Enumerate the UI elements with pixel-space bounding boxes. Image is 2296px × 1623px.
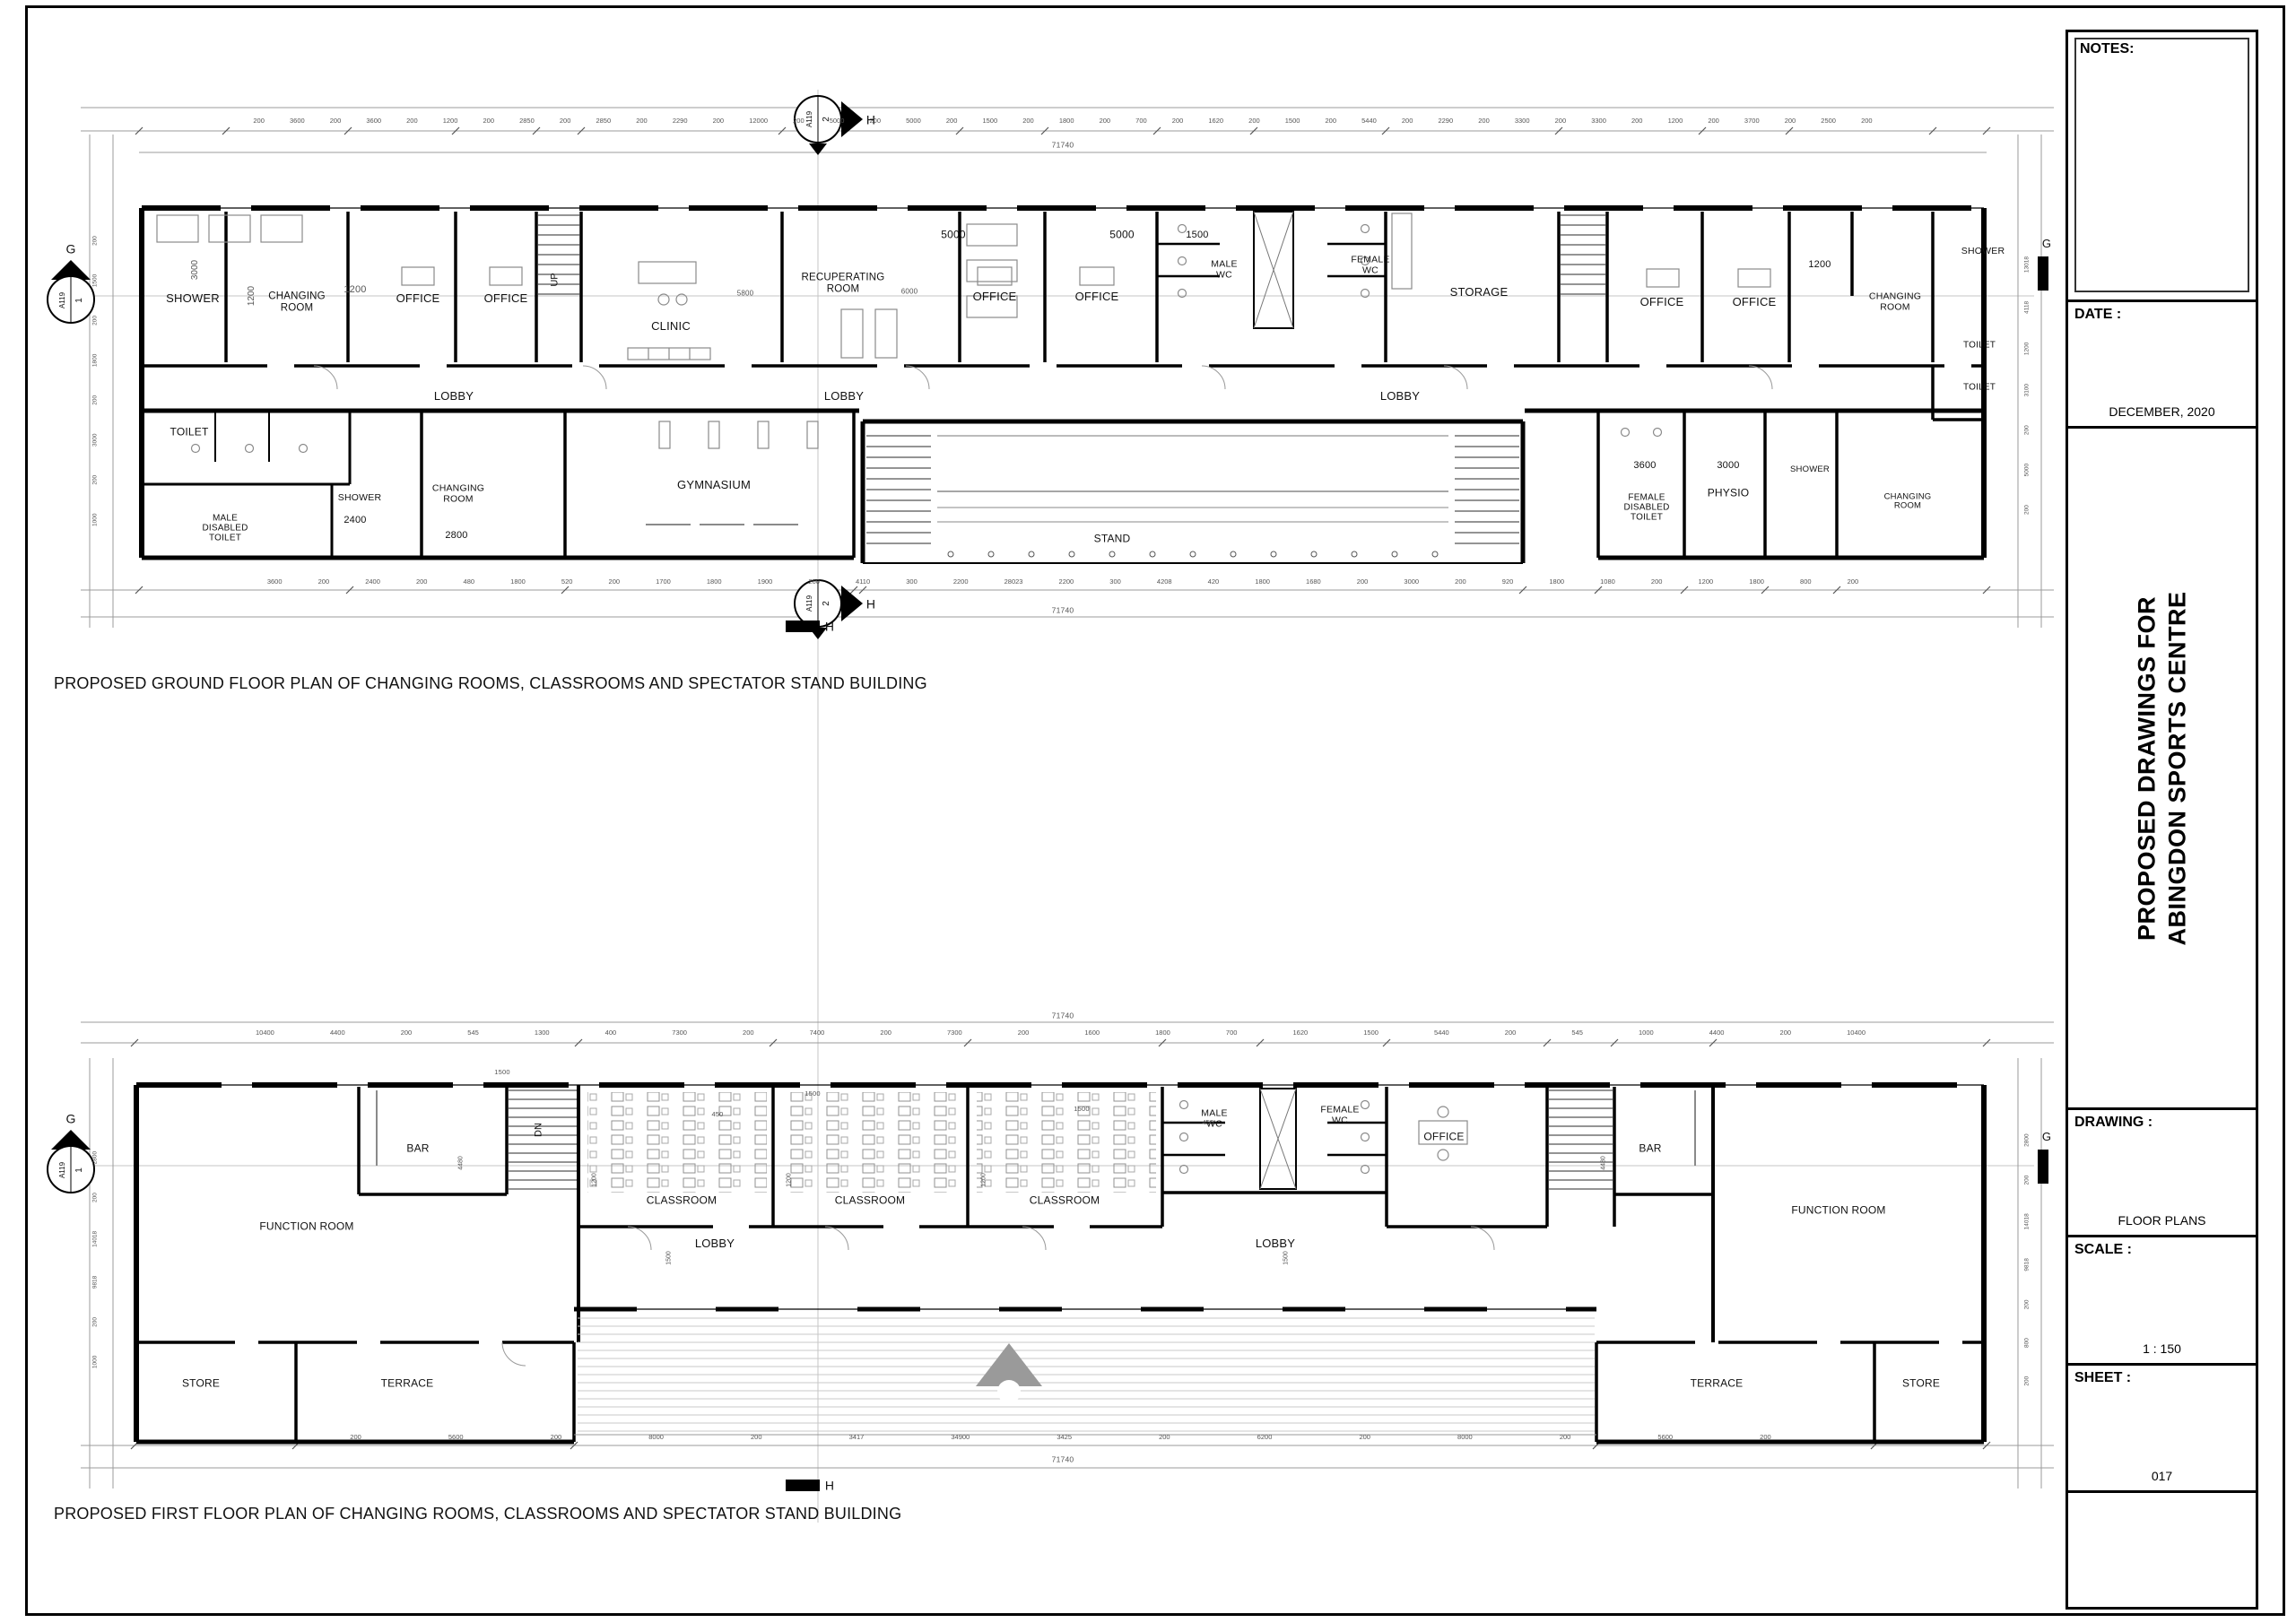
room-label-clinic: CLINIC — [651, 320, 691, 333]
dim-label: 4480 — [1601, 1156, 1607, 1170]
dim-label: 3000 — [191, 260, 200, 280]
title-block-project: PROPOSED DRAWINGS FOR ABINGDON SPORTS CE… — [2068, 429, 2256, 1110]
plans-drawing — [0, 0, 2296, 1623]
dim-label: 6000 — [901, 289, 918, 297]
dim-label: 1200 — [344, 284, 366, 295]
room-label-recuperating-room: RECUPERATING ROOM — [802, 272, 885, 294]
section-marker-ref: A119 — [59, 1162, 66, 1178]
ground-furniture — [157, 213, 1770, 525]
dim-label: 1500 — [666, 1251, 673, 1265]
room-label-female-wc: FEMALE WC — [1320, 1105, 1359, 1125]
roof-arrow — [976, 1343, 1042, 1403]
section-marker-number: 1 — [75, 1167, 84, 1173]
room-label-male-disabled-toilet: MALE DISABLED TOILET — [202, 514, 248, 543]
room-label-lobby: LOBBY — [695, 1237, 735, 1250]
room-label-changing-room: CHANGING ROOM — [1869, 291, 1921, 312]
dim-label: 2800 — [445, 530, 467, 541]
dim-label: 5000 — [941, 229, 966, 240]
room-label-terrace: TERRACE — [1691, 1377, 1744, 1389]
dim-total: 71740 — [1052, 1011, 1074, 1020]
section-marker-ref: A119 — [806, 595, 813, 612]
room-label-shower: SHOWER — [1961, 247, 2005, 257]
room-label-gymnasium: GYMNASIUM — [677, 479, 751, 491]
section-marker-letter-h: H — [825, 1479, 834, 1492]
dim-label: 1500 — [804, 1090, 821, 1098]
room-label-lobby: LOBBY — [434, 390, 474, 403]
room-label-toilet: TOILET — [1963, 383, 1996, 393]
first-floor-detail-lines — [1260, 1089, 1296, 1189]
room-label-function-room: FUNCTION ROOM — [259, 1220, 353, 1232]
scale-label: SCALE : — [2074, 1242, 2132, 1258]
first-door-arcs — [502, 1227, 1494, 1366]
dim-total: 71740 — [1052, 1455, 1074, 1463]
scale-value: 1 : 150 — [2068, 1341, 2256, 1356]
dim-chain-left: 1000 200 9818 14018 200 2800 — [92, 1151, 99, 1368]
dim-chain-bottom: 200 5600 200 8000 200 3417 34900 3425 20… — [135, 1433, 1987, 1441]
dim-label: 450 — [1202, 1119, 1213, 1126]
dim-label: 5000 — [1109, 229, 1135, 240]
dim-label: 1200 — [1808, 259, 1831, 270]
room-label-office: OFFICE — [973, 291, 1017, 303]
room-label-stand: STAND — [1094, 533, 1131, 544]
dim-label: 1200 — [981, 1173, 987, 1187]
dim-label: 1200 — [248, 286, 257, 306]
room-label-store: STORE — [182, 1377, 220, 1389]
title-block-notes: NOTES: — [2068, 32, 2256, 302]
section-marker-letter-g: G — [2042, 1131, 2051, 1143]
dim-label: 4480 — [458, 1156, 465, 1170]
dimension-lines — [81, 108, 2054, 1488]
dim-label: 1500 — [1074, 1106, 1090, 1113]
dim-label: 450 — [711, 1111, 723, 1118]
room-label-female-disabled-toilet: FEMALE DISABLED TOILET — [1623, 493, 1669, 523]
dim-label: 2400 — [344, 515, 366, 525]
classroom-desks-1 — [587, 1092, 767, 1193]
classroom-desks-2 — [782, 1092, 961, 1193]
dim-label: 1500 — [1186, 230, 1208, 240]
dim-label: 1200 — [787, 1173, 793, 1187]
section-marker-ref: A119 — [806, 111, 813, 127]
room-label-changing-room: CHANGING ROOM — [268, 291, 326, 313]
title-block-drawing: DRAWING : FLOOR PLANS — [2068, 1110, 2256, 1237]
room-label-toilet: TOILET — [170, 426, 209, 438]
room-label-classroom: CLASSROOM — [1030, 1194, 1100, 1206]
section-marker-number: 2 — [822, 601, 831, 606]
room-label-changing-room: CHANGING ROOM — [432, 483, 484, 504]
room-label-lobby: LOBBY — [824, 390, 864, 403]
dim-total: 71740 — [1052, 141, 1074, 149]
section-marker-letter-h: H — [866, 113, 875, 126]
room-label-bar: BAR — [406, 1142, 429, 1154]
room-label-office: OFFICE — [484, 292, 528, 305]
section-marker-letter-g: G — [65, 242, 75, 256]
drawing-value: FLOOR PLANS — [2068, 1213, 2256, 1228]
room-label-lobby: LOBBY — [1380, 390, 1420, 403]
sheet-value: 017 — [2068, 1469, 2256, 1483]
title-block-sheet: SHEET : 017 — [2068, 1366, 2256, 1493]
room-label-function-room: FUNCTION ROOM — [1791, 1204, 1885, 1216]
section-marker-number: 2 — [822, 117, 831, 122]
room-label-female-wc: FEMALE WC — [1351, 255, 1389, 275]
room-label-classroom: CLASSROOM — [647, 1194, 717, 1206]
section-marker-letter-g: G — [2042, 238, 2051, 250]
dim-chain-bottom: 3600 200 2400 200 480 1800 520 200 1700 … — [139, 577, 1987, 586]
section-marker-number: 1 — [75, 298, 84, 303]
ground-floor-caption: PROPOSED GROUND FLOOR PLAN OF CHANGING R… — [54, 674, 927, 693]
room-label-shower: SHOWER — [338, 493, 381, 504]
room-label-office: OFFICE — [1075, 291, 1119, 303]
date-label: DATE : — [2074, 307, 2121, 323]
room-label-shower: SHOWER — [166, 292, 220, 305]
room-label-classroom: CLASSROOM — [835, 1194, 905, 1206]
stair-label-dn: DN — [535, 1123, 544, 1137]
first-floor-caption: PROPOSED FIRST FLOOR PLAN OF CHANGING RO… — [54, 1505, 901, 1523]
room-label-male-wc: MALE WC — [1211, 259, 1237, 280]
dim-chain-top: 200 3600 200 3600 200 1200 200 2850 200 … — [139, 117, 1987, 125]
room-label-physio: PHYSIO — [1708, 487, 1750, 499]
title-block-date: DATE : DECEMBER, 2020 — [2068, 302, 2256, 429]
title-block: NOTES: DATE : DECEMBER, 2020 PROPOSED DR… — [2066, 30, 2258, 1610]
dim-label: 1500 — [494, 1069, 510, 1076]
sheet: 3000 SHOWER 1200 CHANGING ROOM 1200 OFFI… — [0, 0, 2296, 1623]
notes-box — [2074, 38, 2249, 292]
classroom-desks-3 — [977, 1092, 1156, 1193]
ground-floor-walls — [142, 208, 1984, 563]
sheet-label: SHEET : — [2074, 1370, 2131, 1386]
dim-label: 3600 — [1633, 460, 1656, 471]
room-label-office: OFFICE — [1640, 296, 1684, 308]
section-marker-letter-h: H — [825, 620, 834, 633]
dim-chain-left: 1000 200 3000 200 1800 200 1500 200 — [92, 236, 99, 526]
section-marker-letter-h: H — [866, 597, 875, 611]
date-value: DECEMBER, 2020 — [2068, 404, 2256, 419]
title-block-scale: SCALE : 1 : 150 — [2068, 1237, 2256, 1366]
dim-label: 5800 — [737, 291, 754, 299]
room-label-terrace: TERRACE — [381, 1377, 434, 1389]
stand-rows — [937, 491, 1448, 522]
room-label-toilet: TOILET — [1963, 341, 1996, 351]
drawing-label: DRAWING : — [2074, 1115, 2152, 1131]
roof-lines — [578, 1318, 1595, 1431]
stand-seat-circles — [948, 551, 1438, 557]
dim-chain-right: 200 800 200 9818 14018 200 2800 — [2024, 1133, 2031, 1385]
section-marker-letter-g: G — [65, 1112, 75, 1125]
dim-label: 1500 — [1283, 1251, 1290, 1265]
dim-label: 3000 — [1717, 460, 1739, 471]
room-label-shower: SHOWER — [1790, 465, 1830, 474]
room-label-office: OFFICE — [396, 292, 440, 305]
room-label-office: OFFICE — [1733, 296, 1777, 308]
dim-total: 71740 — [1052, 606, 1074, 614]
room-label-bar: BAR — [1639, 1142, 1661, 1154]
stair-treads — [538, 215, 1605, 543]
room-label-storage: STORAGE — [1450, 286, 1509, 299]
room-label-office: OFFICE — [1423, 1131, 1464, 1142]
dim-label: 1200 — [592, 1173, 598, 1187]
notes-label: NOTES: — [2080, 41, 2134, 57]
section-marker-ref: A119 — [59, 292, 66, 308]
dim-chain-right: 200 5000 200 3100 1200 4118 13018 — [2024, 256, 2031, 515]
ground-door-arcs — [314, 366, 1772, 389]
room-label-lobby: LOBBY — [1256, 1237, 1295, 1250]
room-label-store: STORE — [1902, 1377, 1940, 1389]
project-title: PROPOSED DRAWINGS FOR ABINGDON SPORTS CE… — [2132, 428, 2193, 1109]
room-label-changing-room: CHANGING ROOM — [1884, 493, 1932, 512]
title-block-empty — [2068, 1493, 2256, 1604]
stair-label-up: UP — [551, 273, 561, 286]
dim-chain-top: 10400 4400 200 545 1300 400 7300 200 740… — [135, 1028, 1987, 1037]
